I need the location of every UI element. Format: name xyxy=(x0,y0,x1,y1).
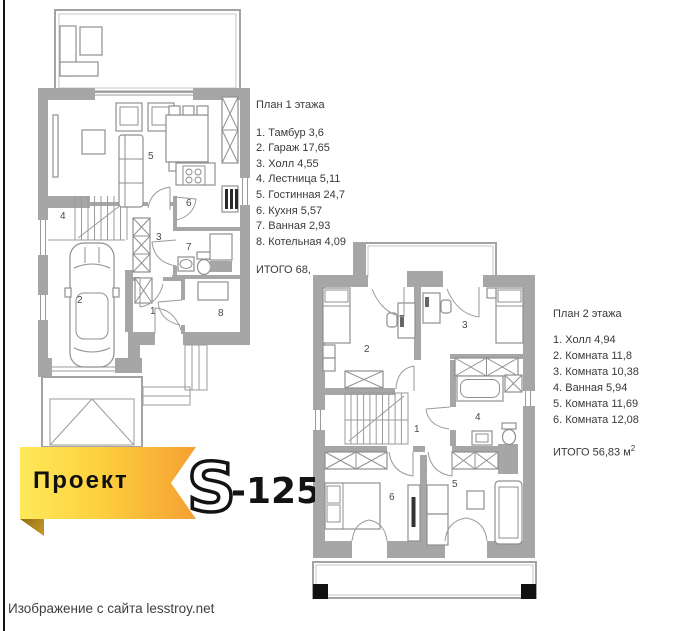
porch xyxy=(143,345,207,405)
room-number: 2 xyxy=(77,295,83,306)
plan2-total-text: ИТОГО 56,83 м xyxy=(553,447,631,459)
legend-item: 6. Кухня 5,57 xyxy=(256,204,446,220)
terrace-table xyxy=(80,27,102,55)
room-number: 6 xyxy=(389,492,395,503)
terrace xyxy=(55,10,240,92)
room-number: 7 xyxy=(186,242,192,253)
legend-item: 4. Ванная 5,94 xyxy=(553,380,678,396)
room-number: 1 xyxy=(414,424,420,435)
room-number: 1 xyxy=(150,306,156,317)
legend-item: 1. Тамбур 3,6 xyxy=(256,126,446,142)
room-number: 4 xyxy=(475,412,481,423)
balcony-post xyxy=(313,584,328,599)
living-room-furniture xyxy=(53,103,208,207)
legend-item: 5. Комната 11,69 xyxy=(553,396,678,412)
balcony xyxy=(313,562,536,599)
plan2-legend: План 2 этажа 1. Холл 4,94 2. Комната 11,… xyxy=(553,306,678,461)
plan2-total: ИТОГО 56,83 м2 xyxy=(553,441,678,461)
room-number: 8 xyxy=(218,308,224,319)
room-number: 5 xyxy=(148,151,154,162)
plan1-title: План 1 этажа xyxy=(256,98,446,114)
toilet xyxy=(503,430,516,445)
legend-item: 5. Гостинная 24,7 xyxy=(256,188,446,204)
bed xyxy=(496,288,523,343)
legend-item: 2. Комната 11,8 xyxy=(553,348,678,364)
bed xyxy=(323,288,350,343)
series-letter: S xyxy=(187,449,236,527)
legend-item: 8. Котельная 4,09 xyxy=(256,235,446,251)
sofa xyxy=(119,135,143,207)
room-number: 3 xyxy=(462,320,468,331)
desk xyxy=(427,485,448,514)
room-number: 6 xyxy=(186,198,192,209)
cabinet xyxy=(210,234,232,260)
bathroom1-fixtures xyxy=(178,234,232,275)
window-sill xyxy=(53,115,58,177)
plan1-legend: План 1 этажа 1. Тамбур 3,6 2. Гараж 17,6… xyxy=(256,98,446,279)
balcony-post xyxy=(521,584,536,599)
chair xyxy=(183,106,194,115)
toilet-tank xyxy=(502,423,516,429)
side-table xyxy=(467,491,484,509)
watermark-text: Изображение с сайта lesstroy.net xyxy=(8,601,214,616)
boiler-unit xyxy=(198,282,228,300)
project-series: S -125 xyxy=(185,449,315,527)
plan2-title: План 2 этажа xyxy=(553,306,678,322)
toilet-tank xyxy=(197,252,211,259)
dining-table xyxy=(166,115,208,162)
room-number: 2 xyxy=(364,344,370,355)
legend-item: 6. Комната 12,08 xyxy=(553,412,678,428)
legend-item: 3. Холл 4,55 xyxy=(256,157,446,173)
plan2-wardrobes xyxy=(325,358,522,469)
chair xyxy=(169,106,180,115)
room-number: 3 xyxy=(156,232,162,243)
chair xyxy=(197,106,208,115)
toilet xyxy=(198,260,211,275)
canopy xyxy=(42,377,142,447)
plan1-total: ИТОГО 68, xyxy=(256,263,446,279)
project-ribbon: Проект xyxy=(20,447,196,519)
plan2-floorplan: 1 2 3 4 5 6 xyxy=(313,242,536,599)
legend-item: 4. Лестница 5,11 xyxy=(256,172,446,188)
plan2-total-sup: 2 xyxy=(631,444,635,453)
room-number: 5 xyxy=(452,479,458,490)
legend-item: 3. Комната 10,38 xyxy=(553,364,678,380)
chair xyxy=(441,300,451,313)
project-label: Проект xyxy=(33,467,129,495)
sink xyxy=(472,431,492,445)
legend-item: 1. Холл 4,94 xyxy=(553,332,678,348)
legend-item: 7. Ванная 2,93 xyxy=(256,219,446,235)
tv xyxy=(412,497,416,527)
floorplan-sheet: 1 2 3 4 5 6 7 8 xyxy=(0,0,678,631)
plan2-stairs xyxy=(345,393,408,444)
coffee-table xyxy=(82,130,105,154)
room-number: 4 xyxy=(60,211,66,222)
plan1-floorplan: 1 2 3 4 5 6 7 8 xyxy=(38,10,250,447)
car xyxy=(65,243,119,367)
series-number: -125 xyxy=(231,471,315,512)
legend-item: 2. Гараж 17,65 xyxy=(256,141,446,157)
